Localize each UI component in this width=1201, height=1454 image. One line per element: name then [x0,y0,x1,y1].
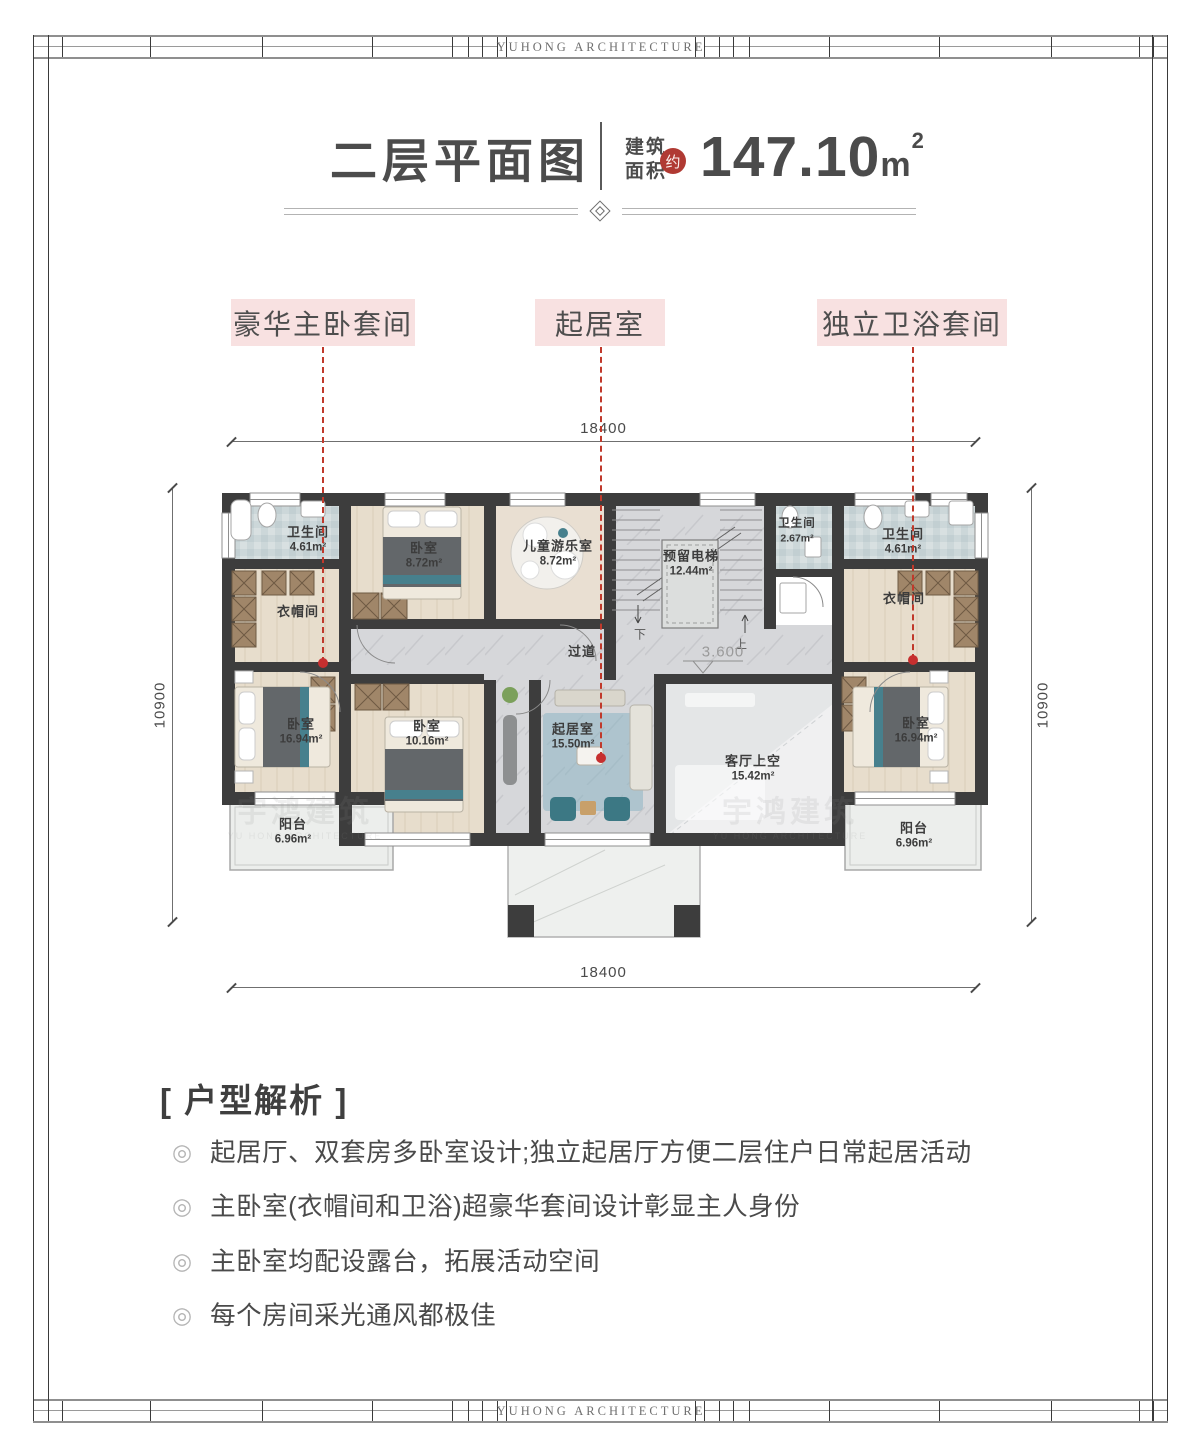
frame-band-bottom: YUHONG ARCHITECTURE [33,1399,1168,1423]
room-label-bedroom-1016: 卧室 10.16m² [406,720,449,749]
room-label-bathroom-small: 卫生间 2.67m² [778,517,816,546]
room-label-void: 客厅上空 15.42m² [725,755,781,784]
frame-band-top: YUHONG ARCHITECTURE [33,35,1168,59]
analysis-item-2: ◎ 主卧室(衣帽间和卫浴)超豪华套间设计彰显主人身份 [172,1190,800,1224]
dim-line-top [231,441,976,442]
leader-dot-right [908,655,918,665]
room-label-master-left: 卧室 16.94m² [280,718,323,747]
brand-box-top: YUHONG ARCHITECTURE [497,37,705,57]
analysis-item-1: ◎ 起居厅、双套房多卧室设计;独立起居厅方便二层住户日常起居活动 [172,1136,972,1170]
room-label-elevator: 预留电梯 12.44m² [663,550,719,579]
level-value: 3.600 [702,644,745,661]
room-label-cloakroom-right: 衣帽间 [883,592,925,606]
room-label-master-right: 卧室 16.94m² [895,717,938,746]
bullet-ring-icon: ◎ [172,1136,192,1170]
area-value: 147.10m2 [700,124,925,190]
room-label-bedroom-872: 卧室 8.72m² [406,542,442,571]
dim-line-right [1031,488,1032,922]
dim-right-value: 10900 [1035,682,1052,729]
dim-line-bottom [231,987,976,988]
brand-text-top: YUHONG ARCHITECTURE [497,40,706,55]
frame-rail-right-inner [1152,35,1153,1421]
frame-rail-left-outer [33,35,34,1421]
page-title: 二层平面图 [330,123,590,192]
brand-text-bottom: YUHONG ARCHITECTURE [497,1404,706,1419]
dim-top-value: 18400 [231,420,976,437]
dim-bottom-value: 18400 [231,964,976,981]
callout-living-room: 起居室 [535,299,665,346]
room-label-living-room: 起居室 15.50m² [552,723,595,752]
frame-rail-right-outer [1167,35,1168,1421]
dim-line-left [172,488,173,922]
frame-rail-left-inner [48,35,49,1421]
leader-line-right [912,347,914,660]
entry-canopy [508,842,700,937]
header-divider [600,122,602,190]
analysis-item-4: ◎ 每个房间采光通风都极佳 [172,1299,496,1333]
callout-bath-suite: 独立卫浴套间 [817,299,1007,346]
room-label-balcony-left: 阳台 6.96m² [275,818,311,847]
stair-down-label: 下 [634,626,646,643]
room-label-bathroom-top-right: 卫生间 4.61m² [882,528,924,557]
bullet-ring-icon: ◎ [172,1245,192,1279]
bullet-ring-icon: ◎ [172,1190,192,1224]
room-label-playroom: 儿童游乐室 8.72m² [523,540,593,569]
watermark-right: 宇鸿建筑 YU HONG ARCHITECTURE [713,787,868,841]
analysis-item-3: ◎ 主卧室均配设露台，拓展活动空间 [172,1245,600,1279]
callout-master-suite: 豪华主卧套间 [231,299,415,346]
room-label-balcony-right: 阳台 6.96m² [896,822,932,851]
room-label-cloakroom-left: 衣帽间 [277,605,319,619]
dim-left-value: 10900 [152,682,169,729]
brand-box-bottom: YUHONG ARCHITECTURE [497,1401,705,1421]
room-label-corridor: 过道 [568,645,596,659]
page: { "frame": { "brand": "YUHONG ARCHITECTU… [0,0,1201,1454]
approx-badge: 约 [660,148,686,174]
bullet-ring-icon: ◎ [172,1299,192,1333]
leader-dot-left [318,658,328,668]
leader-line-center [600,347,602,758]
leader-dot-center [596,753,606,763]
leader-line-left [322,347,324,663]
analysis-title: [ 户型解析 ] [160,1074,348,1122]
